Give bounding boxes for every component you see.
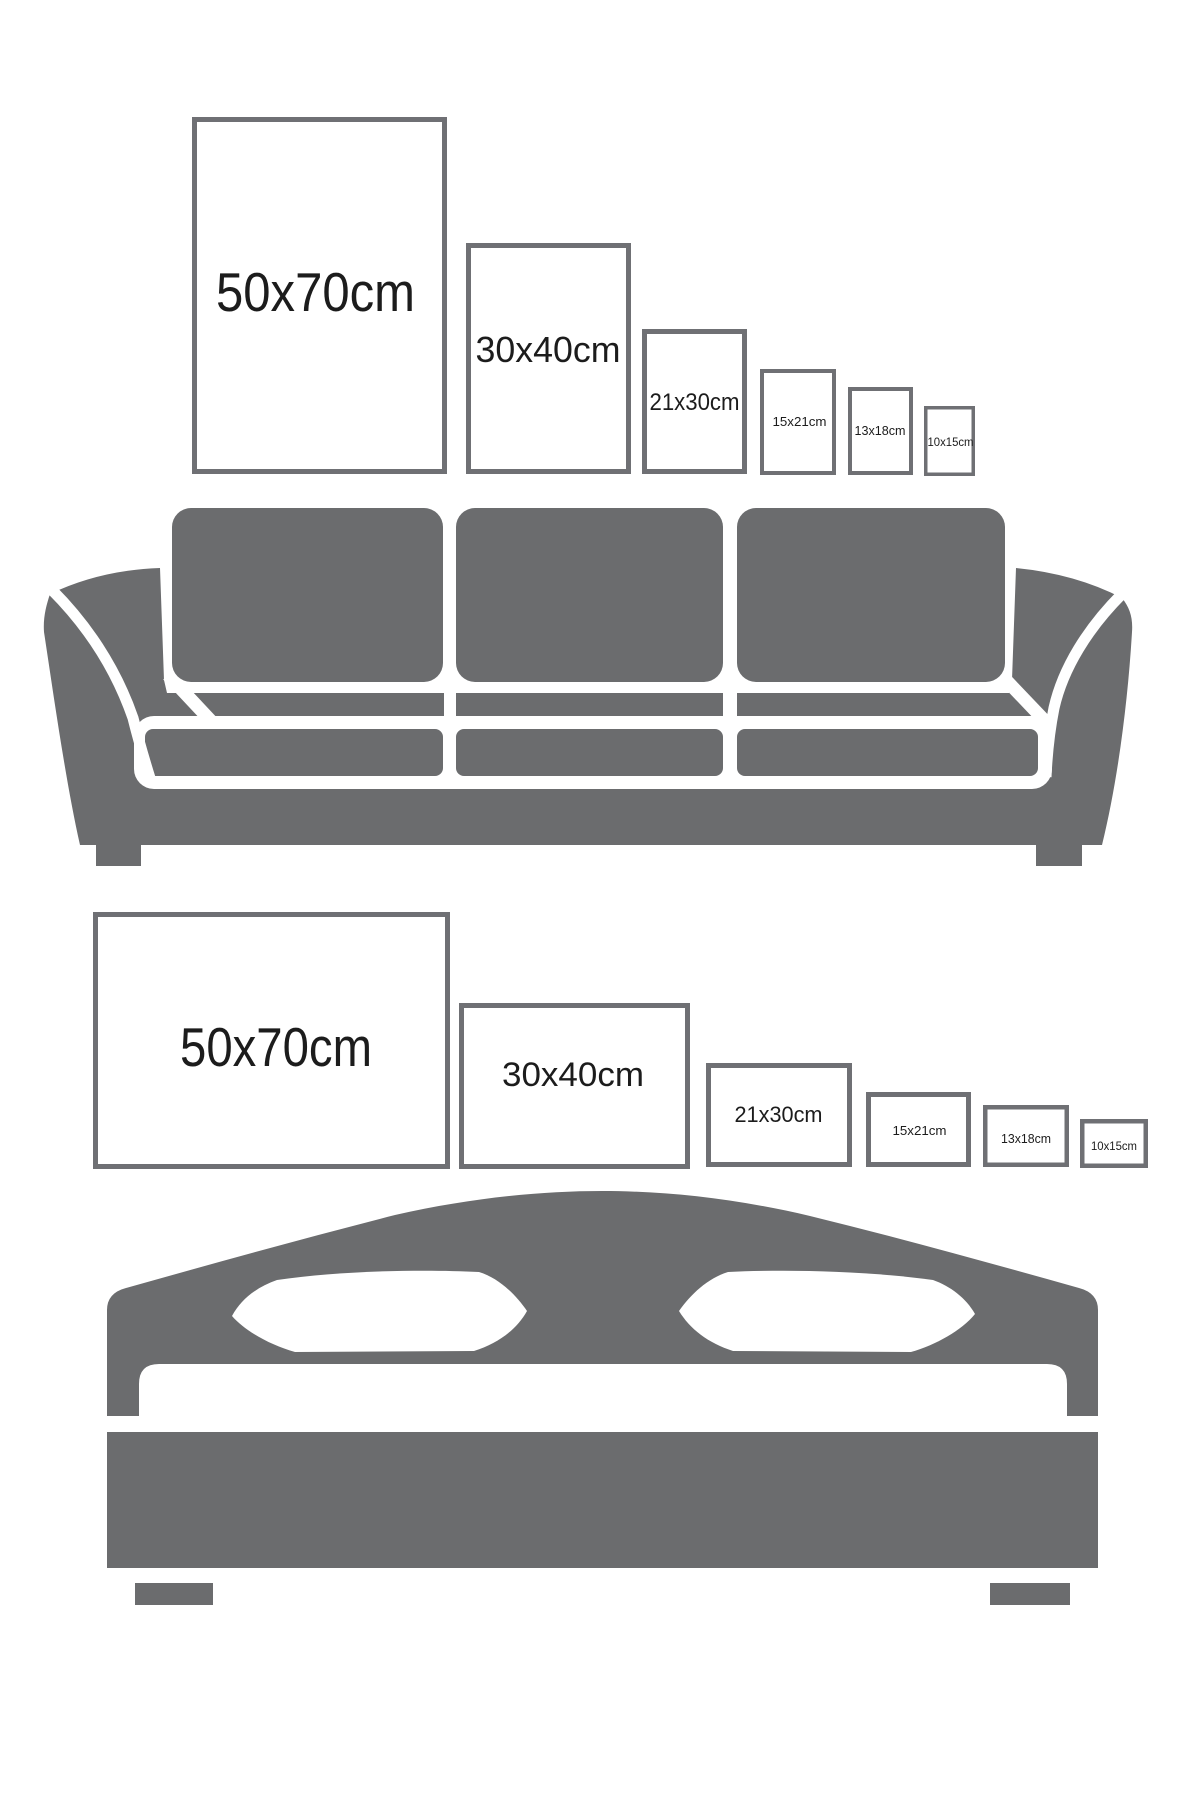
svg-text:13x18cm: 13x18cm: [1001, 1132, 1051, 1146]
svg-text:50x70cm: 50x70cm: [216, 261, 415, 323]
svg-text:30x40cm: 30x40cm: [476, 329, 621, 370]
svg-text:30x40cm: 30x40cm: [502, 1056, 644, 1094]
svg-text:15x21cm: 15x21cm: [893, 1123, 947, 1138]
svg-text:10x15cm: 10x15cm: [1091, 1141, 1137, 1153]
svg-text:21x30cm: 21x30cm: [650, 389, 740, 416]
svg-text:21x30cm: 21x30cm: [735, 1102, 823, 1127]
svg-text:50x70cm: 50x70cm: [180, 1016, 372, 1078]
svg-text:15x21cm: 15x21cm: [773, 414, 827, 429]
svg-text:13x18cm: 13x18cm: [855, 423, 906, 438]
svg-text:10x15cm: 10x15cm: [928, 437, 974, 449]
